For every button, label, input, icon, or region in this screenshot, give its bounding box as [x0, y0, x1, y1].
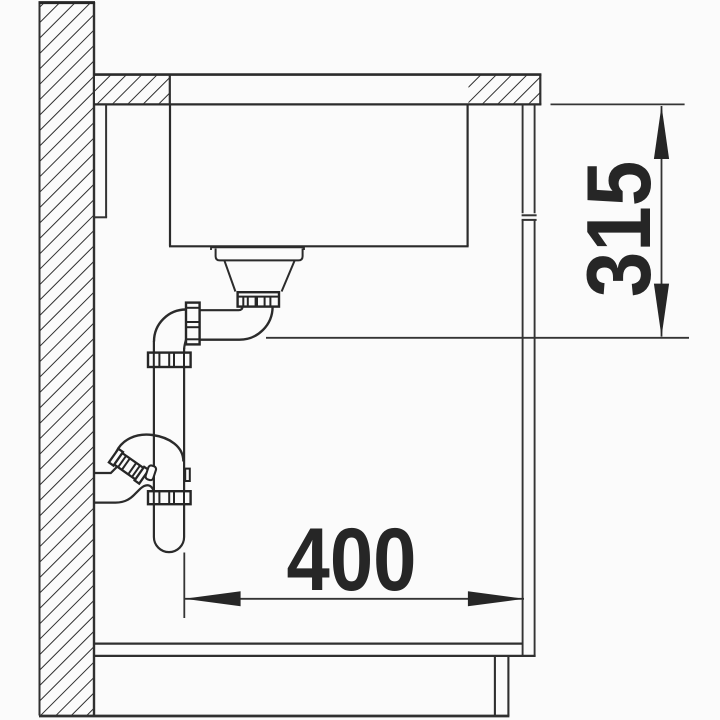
svg-text:315: 315: [569, 161, 670, 298]
svg-text:400: 400: [287, 509, 417, 609]
